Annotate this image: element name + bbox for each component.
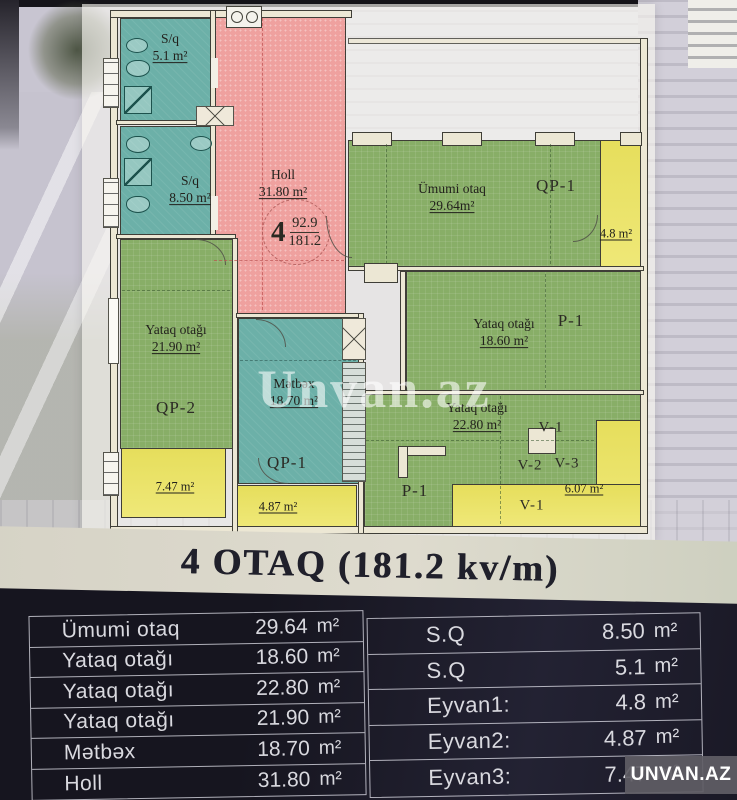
row-value: 29.64	[227, 615, 307, 640]
wall	[398, 446, 408, 478]
zone-p1-yataq2: P-1	[402, 481, 429, 501]
guide-line	[386, 144, 387, 264]
radiator	[103, 178, 119, 228]
row-unit: m²	[308, 645, 363, 668]
balcony-4-8	[600, 140, 641, 271]
room-label-sq-small: S/q5.1 m²	[153, 31, 188, 65]
total-area: 181.2	[288, 233, 321, 250]
table-row: S.Q8.50m²	[368, 613, 701, 654]
background-tower	[688, 0, 737, 68]
row-value: 8.50	[565, 618, 645, 645]
toilet-icon	[126, 196, 150, 213]
room-label-sq-main: S/q8.50 m²	[169, 173, 211, 207]
area-fraction: 92.9 181.2	[288, 215, 321, 249]
zone-p1-yataq1: P-1	[558, 311, 585, 331]
zone-qp1-metbex: QP-1	[267, 453, 307, 473]
room-area: 21.90 m²	[152, 339, 200, 354]
plan-summary-circle: 4 92.9 181.2	[262, 199, 330, 265]
room-name: S/q	[181, 173, 199, 188]
radiator	[103, 452, 119, 496]
row-value: 31.80	[230, 768, 310, 793]
room-label-umumi: Ümumi otaq29.64m²	[418, 181, 486, 215]
wall	[116, 234, 236, 239]
row-unit: m²	[645, 654, 700, 678]
row-name: S.Q	[368, 655, 565, 684]
shower-icon	[124, 158, 152, 186]
zone-v2: V-2	[518, 458, 543, 475]
room-count: 4	[271, 216, 286, 249]
row-value: 4.87	[566, 725, 646, 752]
row-unit: m²	[309, 676, 364, 699]
room-label-holl: Holl31.80 m²	[259, 167, 307, 201]
zone-qp2-yataq3: QP-2	[156, 398, 196, 418]
row-unit: m²	[307, 615, 362, 638]
balcony-area-48: 4.8 m²	[600, 227, 632, 242]
room-label-yataq-2190: Yataq otağı21.90 m²	[145, 322, 206, 356]
balcony-area-747: 7.47 m²	[156, 480, 194, 495]
row-name: Mətbəx	[32, 738, 230, 765]
row-name: S.Q	[368, 620, 565, 649]
row-name: Ümumi otaq	[30, 616, 228, 643]
wall	[640, 38, 648, 534]
shaft-hatch	[342, 318, 366, 360]
row-value: 18.60	[228, 645, 308, 670]
zone-qp1-umumi: QP-1	[536, 176, 576, 196]
table-row: Eyvan2:4.87m²	[369, 720, 702, 761]
row-name: Holl	[32, 769, 230, 796]
row-value: 4.8	[566, 689, 646, 716]
room-area: 5.1 m²	[153, 48, 188, 63]
pillar	[442, 132, 482, 146]
row-name: Eyvan1:	[369, 691, 566, 720]
room-name: Yataq otağı	[145, 322, 206, 337]
table-row: Eyvan1:4.8m²	[369, 684, 702, 725]
pillar	[535, 132, 575, 146]
room-area: 8.50 m²	[169, 190, 211, 205]
guide-line	[122, 290, 230, 291]
row-name: Eyvan2:	[369, 726, 566, 755]
sink-icon	[190, 136, 212, 151]
balcony-area-487: 4.87 m²	[259, 500, 297, 515]
guide-line	[262, 18, 263, 310]
balcony-607-horizontal	[452, 484, 641, 527]
row-unit: m²	[310, 737, 365, 760]
listing-photo: S/q5.1 m² S/q8.50 m² Holl31.80 m² Ümumi …	[0, 0, 737, 800]
row-unit: m²	[310, 768, 365, 791]
room-name: Ümumi otaq	[418, 181, 486, 196]
row-value: 22.80	[229, 676, 309, 701]
shower-icon	[124, 86, 152, 114]
row-value: 18.70	[230, 737, 310, 762]
pillar	[620, 132, 642, 146]
living-area: 92.9	[290, 215, 319, 233]
room-name: S/q	[161, 31, 179, 46]
row-name: Yataq otağı	[30, 647, 228, 674]
sink-icon	[126, 38, 148, 53]
row-unit: m²	[646, 725, 701, 749]
balcony-area-607: 6.07 m²	[565, 482, 603, 497]
row-name: Eyvan3:	[370, 762, 567, 791]
door-gap	[211, 196, 218, 230]
row-unit: m²	[646, 690, 701, 714]
door-gap	[211, 58, 218, 88]
guide-line	[366, 440, 594, 441]
room-area: 31.80 m²	[259, 184, 307, 199]
row-value: 5.1	[565, 654, 645, 681]
room-name: Yataq otağı	[473, 316, 534, 331]
pillar	[364, 263, 398, 283]
watermark-text: Unvan.az	[224, 358, 524, 420]
area-tables: Ümumi otaq29.64m² Yataq otağı18.60m² Yat…	[23, 600, 718, 800]
room-label-yataq-1860: Yataq otağı18.60 m²	[473, 316, 534, 350]
shaft-hatch	[196, 106, 234, 126]
room-area: 18.60 m²	[480, 333, 528, 348]
zone-v1-upper: V-1	[539, 420, 564, 437]
unvan-az-badge: UNVAN.AZ	[625, 756, 737, 794]
photo-left-edge	[0, 0, 19, 150]
window	[108, 298, 119, 364]
row-unit: m²	[309, 706, 364, 729]
row-value: 21.90	[229, 706, 309, 731]
room-area: 29.64m²	[430, 198, 475, 213]
table-row: Holl31.80m²	[32, 764, 365, 800]
table-row: S.Q5.1m²	[368, 649, 701, 690]
guide-line	[545, 274, 546, 388]
guide-line	[550, 144, 551, 264]
row-name: Yataq otağı	[31, 677, 229, 704]
row-unit: m²	[645, 619, 700, 643]
row-name: Yataq otağı	[31, 708, 229, 735]
room-name: Holl	[271, 167, 295, 182]
washer-icon	[226, 6, 262, 28]
zone-v3: V-3	[555, 456, 580, 473]
room-areas-table: Ümumi otaq29.64m² Yataq otağı18.60m² Yat…	[28, 610, 366, 800]
zone-v1-lower: V-1	[520, 498, 545, 515]
toilet-icon	[126, 60, 150, 77]
radiator	[103, 58, 119, 108]
wall	[348, 38, 646, 44]
toilet-icon	[126, 136, 150, 153]
